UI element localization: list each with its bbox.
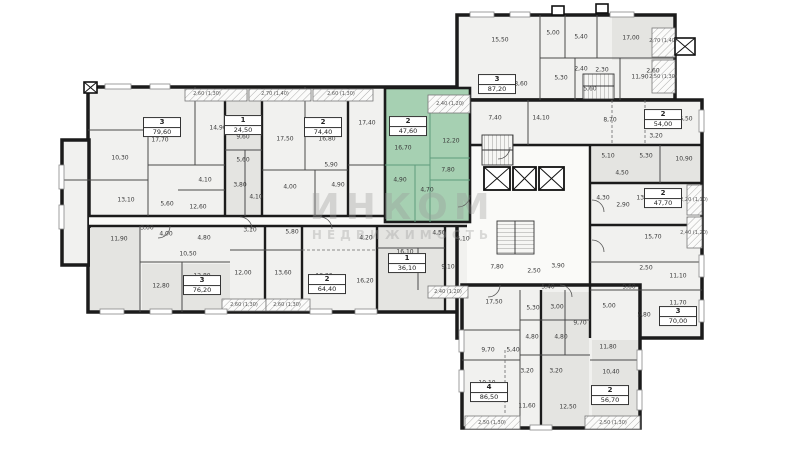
balcony-size-label: 2,60 (1,30) (193, 91, 221, 97)
room-area-label: 8,70 (603, 117, 616, 124)
room-area-label: 13,60 (274, 270, 291, 277)
room-area-label: 5,40 (574, 34, 587, 41)
unit-area-value: 70,00 (660, 317, 696, 325)
room-area-label: 2,50 (527, 268, 540, 275)
room-area-label: 2,30 (595, 67, 608, 74)
unit-area-value: 56,70 (592, 396, 628, 404)
balcony-size-label: 2,50 (1,30) (599, 420, 627, 426)
room-area-label: 3,10 (243, 227, 256, 234)
unit-rooms-count: 2 (592, 386, 628, 396)
room-area-label: 12,20 (442, 138, 459, 145)
unit-area-value: 47,60 (390, 127, 426, 135)
room-area-label: 2,90 (616, 202, 629, 209)
room-area-label: 12,60 (189, 204, 206, 211)
unit-rooms-count: 3 (184, 276, 220, 286)
room-area-label: 3,00 (550, 304, 563, 311)
room-area-label: 4,80 (197, 235, 210, 242)
unit-label[interactable]: 254,00 (644, 109, 682, 129)
room-area-label: 12,50 (559, 404, 576, 411)
room-area-label: 4,30 (596, 195, 609, 202)
room-area-label: 5,40 (506, 347, 519, 354)
room-area-label: 5,80 (637, 312, 650, 319)
unit-rooms-count: 2 (305, 118, 341, 128)
unit-area-value: 47,70 (645, 199, 681, 207)
room-area-label: 5,30 (526, 305, 539, 312)
room-area-label: 17,00 (622, 35, 639, 42)
unit-label[interactable]: 274,40 (304, 117, 342, 137)
balcony-size-label: 2,40 (1,20) (434, 289, 462, 295)
balcony-size-label: 2,50 (1,30) (649, 74, 677, 80)
room-area-label: 10,40 (602, 369, 619, 376)
unit-label[interactable]: 124,50 (224, 115, 262, 135)
room-area-label: 3,80 (233, 182, 246, 189)
room-area-label: 5,60 (160, 201, 173, 208)
room-area-label: 2,40 (574, 66, 587, 73)
room-area-label: 7,80 (441, 167, 454, 174)
balcony-size-label: 2,40 (1,20) (436, 101, 464, 107)
unit-label-selected[interactable]: 247,60 (389, 116, 427, 136)
room-area-label: 3,90 (551, 263, 564, 270)
floor-plan-svg (0, 0, 800, 450)
room-area-label: 14,10 (532, 115, 549, 122)
room-area-label: 17,40 (358, 120, 375, 127)
balcony-size-label: 2,60 (1,30) (230, 302, 258, 308)
unit-rooms-count: 1 (225, 116, 261, 126)
room-area-label: 5,60 (236, 157, 249, 164)
room-area-label: 12,00 (234, 270, 251, 277)
room-area-label: 7,40 (488, 115, 501, 122)
unit-area-value: 36,10 (389, 264, 425, 272)
room-area-label: 7,80 (490, 264, 503, 271)
floor-plan-canvas: ИНКОМ НЕДВИЖИМОСТЬ 17,7014,9010,3013,105… (0, 0, 800, 450)
room-area-label: 4,90 (331, 182, 344, 189)
balcony-size-label: 2,40 (1,20) (680, 230, 708, 236)
room-area-label: 9,10 (441, 264, 454, 271)
unit-rooms-count: 2 (390, 117, 426, 127)
unit-rooms-count: 2 (309, 275, 345, 285)
room-area-label: 4,70 (420, 187, 433, 194)
room-area-label: 17,50 (276, 136, 293, 143)
room-area-label: 9,70 (573, 320, 586, 327)
room-area-label: 5,60 (583, 86, 596, 93)
room-area-label: 5,90 (324, 162, 337, 169)
room-area-label: 15,70 (644, 234, 661, 241)
unit-area-value: 54,00 (645, 120, 681, 128)
room-area-label: 16,70 (394, 145, 411, 152)
unit-area-value: 24,50 (225, 126, 261, 134)
unit-area-value: 87,20 (479, 85, 515, 93)
unit-label[interactable]: 376,20 (183, 275, 221, 295)
room-area-label: 3,20 (520, 368, 533, 375)
unit-label[interactable]: 387,20 (478, 74, 516, 94)
unit-rooms-count: 4 (471, 383, 507, 393)
room-area-label: 9,70 (481, 347, 494, 354)
unit-area-value: 79,60 (144, 128, 180, 136)
unit-rooms-count: 3 (144, 118, 180, 128)
unit-rooms-count: 3 (660, 307, 696, 317)
unit-rooms-count: 2 (645, 110, 681, 120)
room-area-label: 9,60 (622, 284, 635, 291)
room-area-label: 11,90 (631, 74, 648, 81)
room-area-label: 11,10 (669, 273, 686, 280)
room-area-label: 3,00 (140, 225, 153, 232)
room-area-label: 11,80 (599, 344, 616, 351)
room-area-label: 4,10 (198, 177, 211, 184)
unit-rooms-count: 3 (479, 75, 515, 85)
room-area-label: 10,50 (179, 251, 196, 258)
room-area-label: 5,30 (554, 75, 567, 82)
room-area-label: 4,50 (615, 170, 628, 177)
balcony-size-label: 2,50 (1,30) (478, 420, 506, 426)
unit-label[interactable]: 486,50 (470, 382, 508, 402)
room-area-label: 4,10 (249, 194, 262, 201)
unit-area-value: 86,50 (471, 393, 507, 401)
balcony-size-label: 2,20 (1,10) (680, 197, 708, 203)
room-area-label: 5,00 (546, 30, 559, 37)
unit-rooms-count: 2 (645, 189, 681, 199)
balcony-size-label: 2,70 (1,40) (649, 38, 677, 44)
room-area-label: 10,30 (111, 155, 128, 162)
room-area-label: 16,20 (356, 278, 373, 285)
room-area-label: 4,00 (159, 231, 172, 238)
room-area-label: 17,50 (485, 299, 502, 306)
unit-label[interactable]: 256,70 (591, 385, 629, 405)
unit-label[interactable]: 247,70 (644, 188, 682, 208)
unit-label[interactable]: 136,10 (388, 253, 426, 273)
room-area-label: 5,80 (285, 229, 298, 236)
room-area-label: 4,80 (525, 334, 538, 341)
unit-label[interactable]: 264,40 (308, 274, 346, 294)
elevator-shafts-icon (484, 167, 564, 190)
room-area-label: 17,70 (151, 137, 168, 144)
room-area-label: 5,10 (601, 153, 614, 160)
balcony-size-label: 2,70 (1,40) (261, 91, 289, 97)
room-area-label: 13,10 (117, 197, 134, 204)
unit-rooms-count: 1 (389, 254, 425, 264)
room-area-label: 5,30 (639, 153, 652, 160)
room-area-label: 5,40 (541, 284, 554, 291)
balcony-size-label: 2,60 (1,30) (327, 91, 355, 97)
balcony-size-label: 2,60 (1,30) (273, 302, 301, 308)
room-area-label: 12,80 (152, 283, 169, 290)
room-area-label: 4,50 (432, 230, 445, 237)
room-area-label: 2,50 (639, 265, 652, 272)
unit-area-value: 74,40 (305, 128, 341, 136)
room-area-label: 10,90 (675, 156, 692, 163)
unit-area-value: 76,20 (184, 286, 220, 294)
unit-label[interactable]: 379,60 (143, 117, 181, 137)
room-area-label: 11,90 (110, 236, 127, 243)
room-area-label: 5,00 (602, 303, 615, 310)
unit-area-value: 64,40 (309, 285, 345, 293)
room-area-label: 4,20 (359, 235, 372, 242)
room-area-label: 4,90 (393, 177, 406, 184)
room-area-label: 5,10 (456, 236, 469, 243)
room-area-label: 11,60 (518, 403, 535, 410)
unit-label[interactable]: 370,00 (659, 306, 697, 326)
room-area-label: 4,80 (554, 334, 567, 341)
room-area-label: 3,20 (649, 133, 662, 140)
room-area-label: 3,20 (549, 368, 562, 375)
room-area-label: 15,50 (491, 37, 508, 44)
room-area-label: 4,00 (283, 184, 296, 191)
